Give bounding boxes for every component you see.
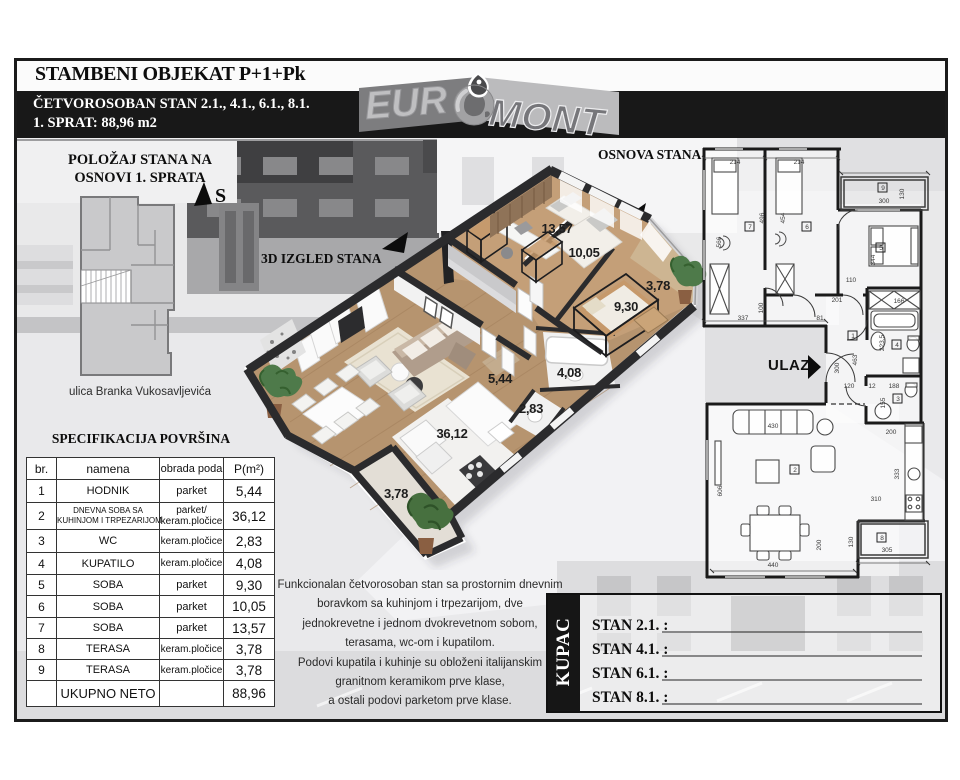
svg-text:454: 454 <box>780 212 787 223</box>
svg-text:344: 344 <box>870 254 877 265</box>
svg-text:300: 300 <box>834 362 841 373</box>
svg-text:214: 214 <box>730 159 741 166</box>
svg-text:223,5: 223,5 <box>879 334 886 351</box>
svg-text:2,83: 2,83 <box>519 401 543 416</box>
svg-text:120: 120 <box>844 383 855 390</box>
svg-text:1: 1 <box>851 333 855 340</box>
svg-text:5: 5 <box>879 245 883 252</box>
svg-text:3,78: 3,78 <box>646 278 670 293</box>
svg-text:214: 214 <box>794 159 805 166</box>
svg-text:440: 440 <box>768 562 779 569</box>
svg-text:EUR: EUR <box>363 79 448 128</box>
svg-text:566: 566 <box>716 236 723 247</box>
svg-text:100: 100 <box>758 302 765 313</box>
svg-text:36,12: 36,12 <box>436 426 467 441</box>
svg-text:130: 130 <box>899 188 906 199</box>
svg-text:310: 310 <box>871 496 882 503</box>
svg-text:430: 430 <box>768 423 779 430</box>
svg-text:S: S <box>215 185 226 207</box>
svg-text:6: 6 <box>805 224 809 231</box>
svg-text:3: 3 <box>896 396 900 403</box>
svg-text:8: 8 <box>880 535 884 542</box>
svg-text:9: 9 <box>881 185 885 192</box>
svg-text:200: 200 <box>886 429 897 436</box>
svg-text:3,78: 3,78 <box>384 486 408 501</box>
svg-text:4,08: 4,08 <box>557 365 581 380</box>
svg-text:7: 7 <box>748 224 752 231</box>
svg-text:10,05: 10,05 <box>568 245 599 260</box>
svg-text:110: 110 <box>846 277 857 284</box>
svg-text:155: 155 <box>880 397 887 408</box>
svg-text:606: 606 <box>717 485 724 496</box>
svg-text:496: 496 <box>759 212 766 223</box>
svg-text:463: 463 <box>852 354 859 365</box>
svg-text:12: 12 <box>868 383 876 390</box>
svg-text:13,57: 13,57 <box>541 221 572 236</box>
svg-text:166: 166 <box>894 298 905 305</box>
svg-text:201: 201 <box>832 297 843 304</box>
svg-text:305: 305 <box>882 547 893 554</box>
svg-text:2: 2 <box>793 467 797 474</box>
svg-text:5,44: 5,44 <box>488 371 513 386</box>
svg-text:4: 4 <box>895 342 899 349</box>
svg-text:9,30: 9,30 <box>614 299 638 314</box>
svg-text:200: 200 <box>816 539 823 550</box>
svg-text:300: 300 <box>879 198 890 205</box>
svg-text:188: 188 <box>889 383 900 390</box>
svg-text:130: 130 <box>848 536 855 547</box>
svg-text:333: 333 <box>894 468 901 479</box>
